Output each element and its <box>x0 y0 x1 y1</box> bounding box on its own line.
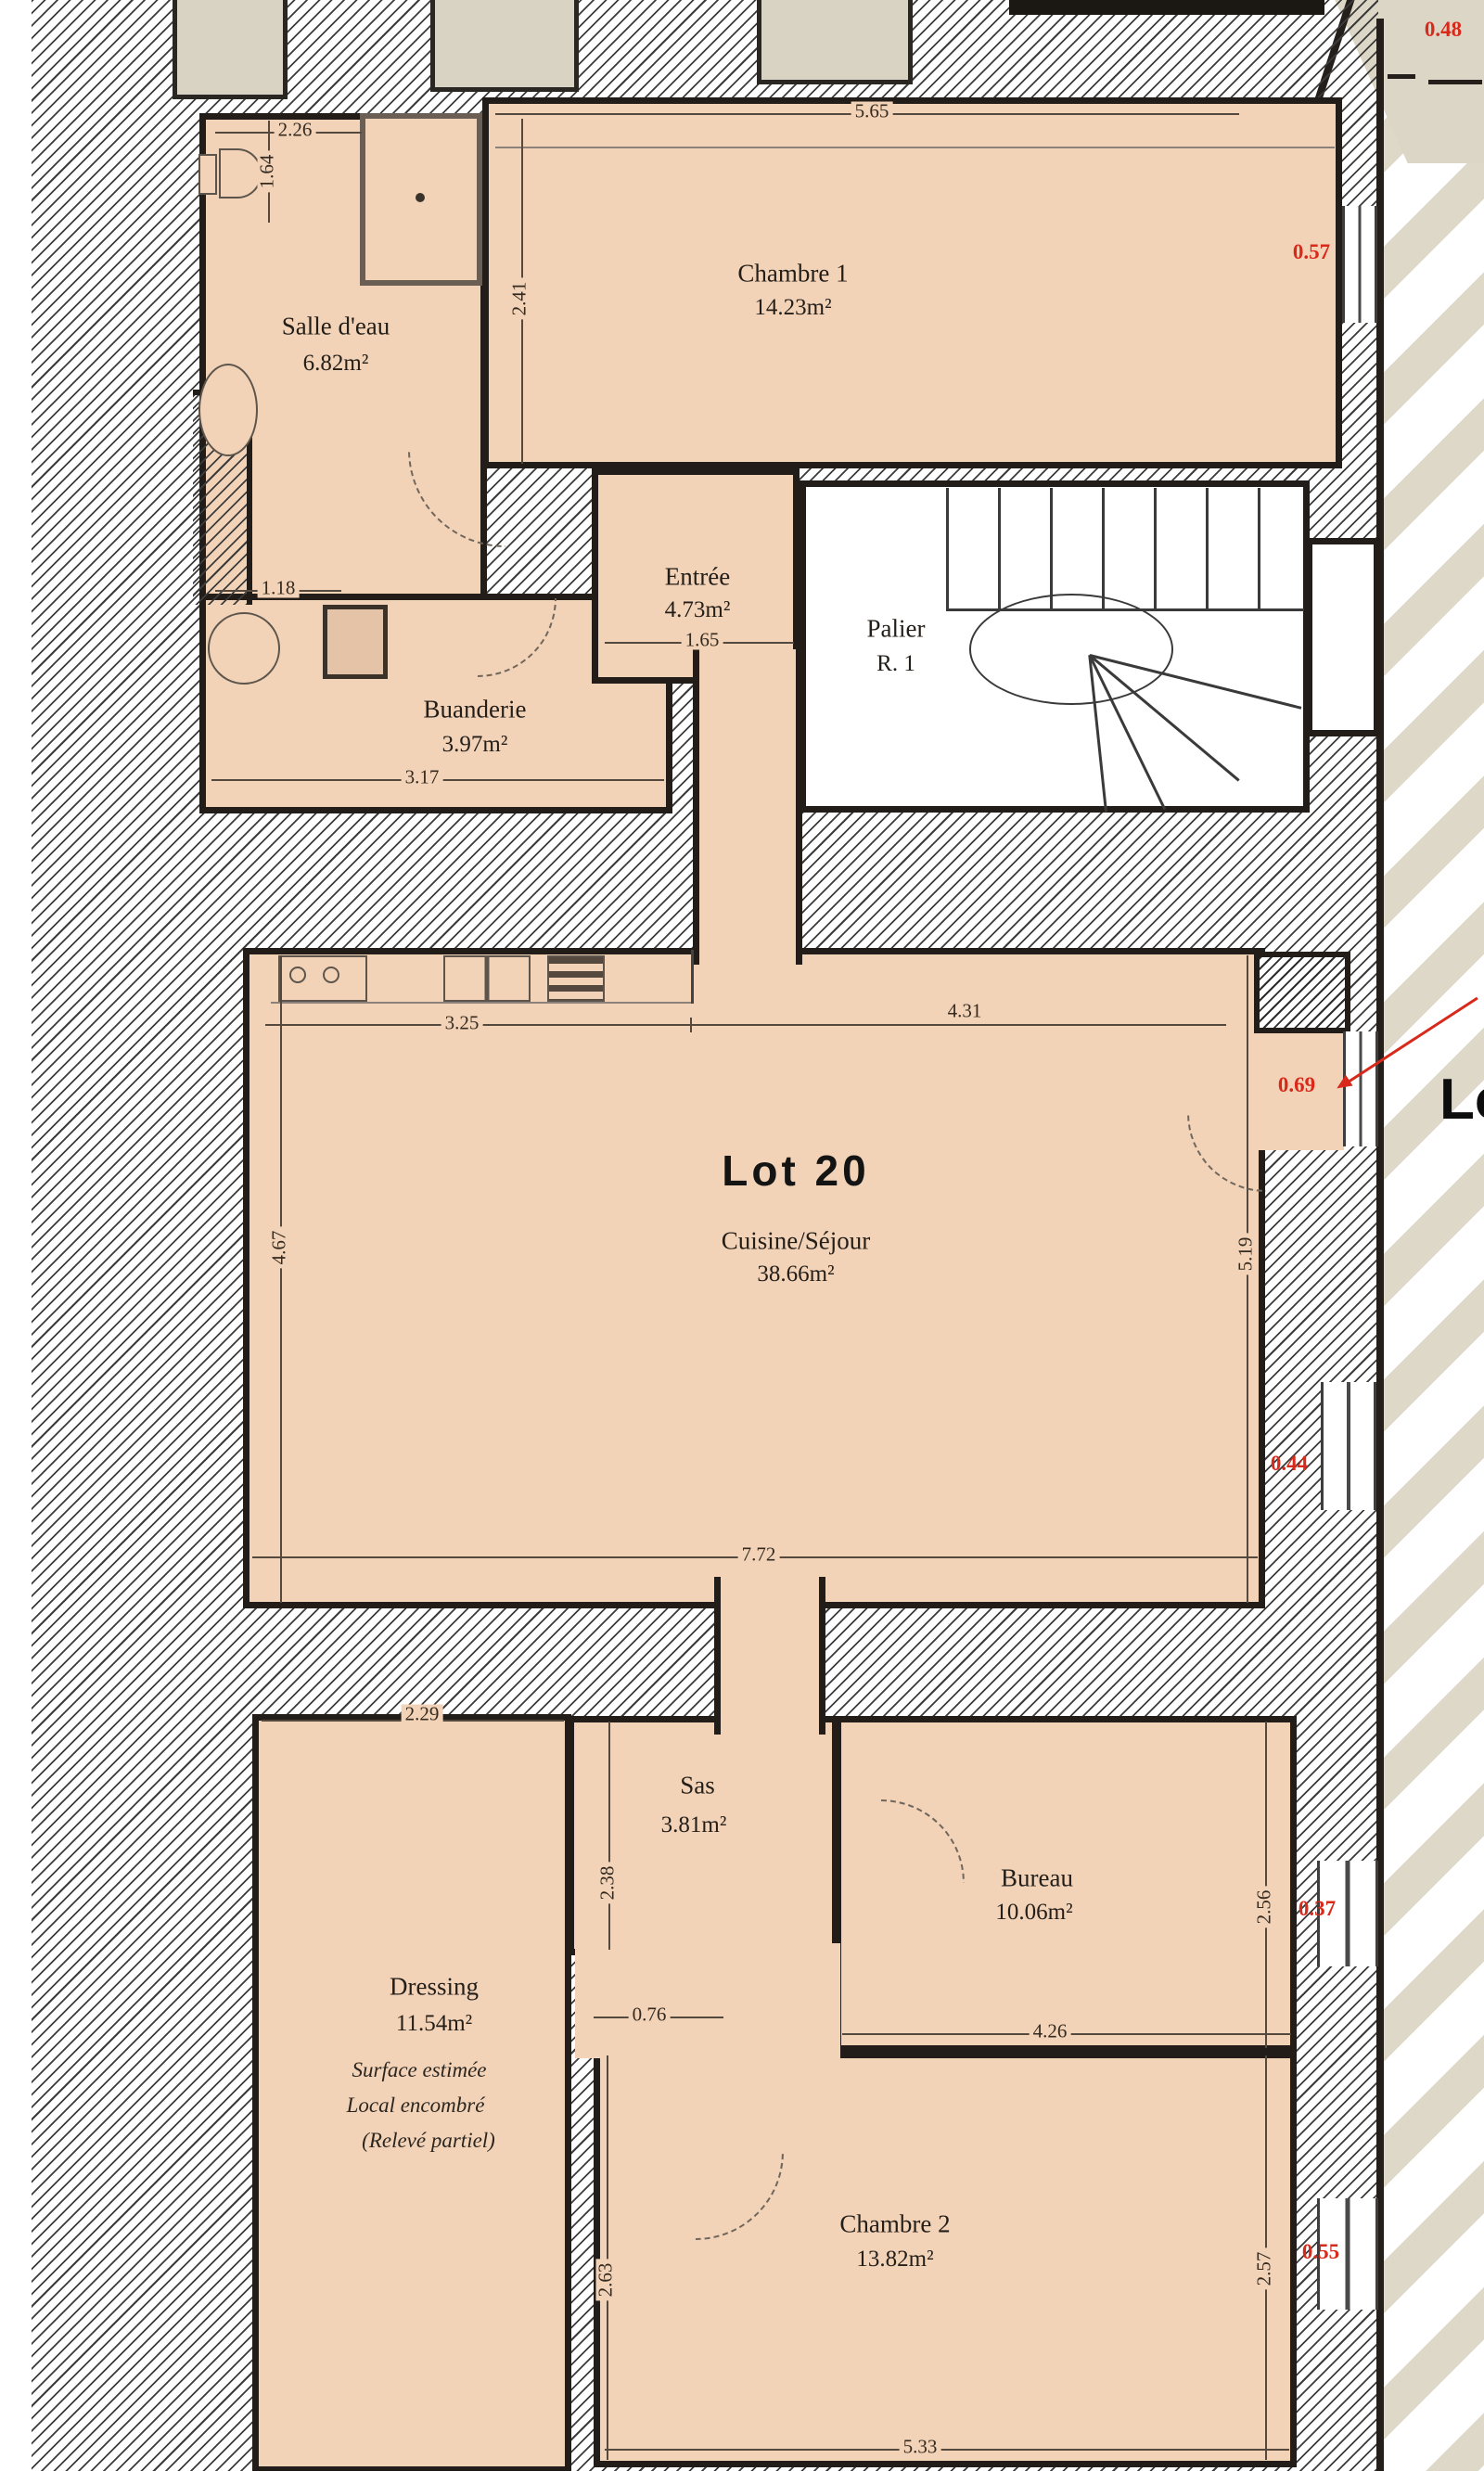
room-level: R. 1 <box>876 651 915 677</box>
room-label: Chambre 2 <box>839 2210 950 2239</box>
dim-label: 5.19 <box>1236 1234 1256 1275</box>
dim-label: 1.65 <box>682 631 723 650</box>
red-dim-label: 0.44 <box>1271 1452 1308 1476</box>
stair-tread <box>1102 488 1105 608</box>
dim-label: 2.29 <box>402 1705 443 1724</box>
window-opening-057 <box>1342 206 1377 323</box>
kitchen-sink-icon <box>443 955 531 1002</box>
wall-dash-1 <box>1388 74 1415 79</box>
room-label: Salle d'eau <box>282 313 390 341</box>
dim-label: 4.26 <box>1030 2022 1071 2042</box>
room-area: 14.23m² <box>754 295 831 321</box>
dim-label: 2.63 <box>596 2260 616 2301</box>
dim-label: 1.18 <box>258 579 300 598</box>
utility-box-icon <box>323 605 388 679</box>
room-note: Surface estimée <box>352 2058 487 2082</box>
room-area: 13.82m² <box>856 2247 933 2273</box>
exterior-striped-zone <box>1378 0 1484 2484</box>
dim-label: 5.65 <box>851 102 893 122</box>
room-label: Dressing <box>390 1973 479 2002</box>
dim-label: 7.72 <box>738 1545 780 1565</box>
stove-burner-icon <box>289 967 306 983</box>
inner-wall-line <box>495 147 1335 148</box>
hall-to-chambre2 <box>575 1943 840 2058</box>
stair-tread <box>1154 488 1157 608</box>
window-opening-044 <box>1321 1382 1376 1510</box>
dim-label: 2.38 <box>598 1863 618 1904</box>
dim-label: 4.31 <box>944 1002 986 1021</box>
neighbor-block-1 <box>173 0 288 99</box>
window-pier <box>1254 952 1350 1033</box>
room-label: Palier <box>867 615 926 644</box>
stove-burner-icon <box>323 967 339 983</box>
red-dim-label: 0.55 <box>1302 2240 1339 2264</box>
red-dim-label: 0.48 <box>1425 18 1462 42</box>
room-note: (Relevé partiel) <box>362 2129 495 2153</box>
room-label: Entrée <box>665 563 730 592</box>
room-area: 3.97m² <box>442 732 508 758</box>
room-area: 4.73m² <box>665 597 731 623</box>
stair-tread <box>1050 488 1053 608</box>
dim-label: 2.56 <box>1255 1887 1274 1928</box>
dim-label: 5.33 <box>900 2438 941 2457</box>
toilet-icon <box>198 154 217 195</box>
flue-dot <box>416 193 425 202</box>
lot-title: Lot 20 <box>722 1146 869 1196</box>
room-area: 10.06m² <box>995 1900 1072 1926</box>
dim-line-v <box>608 1722 610 1950</box>
neighbor-block-3 <box>757 0 913 84</box>
room-label: Sas <box>680 1772 715 1800</box>
dim-label: 3.17 <box>402 768 443 787</box>
room-area: 6.82m² <box>303 351 369 377</box>
dim-line <box>265 1024 1226 1026</box>
room-chambre-1 <box>482 97 1342 468</box>
room-label: Chambre 1 <box>737 260 848 288</box>
wall-dash-2 <box>1428 80 1482 84</box>
dim-label: 2.41 <box>510 278 530 320</box>
stair-tread <box>1258 488 1260 608</box>
red-dim-label: 0.57 <box>1293 240 1330 264</box>
dim-label: 1.64 <box>258 151 277 193</box>
dim-tick <box>690 1018 692 1032</box>
red-dim-label: 0.37 <box>1298 1897 1336 1921</box>
neighbor-block-2 <box>430 0 579 92</box>
kitchen-appliance-icon <box>547 955 605 1002</box>
stair-landing-bump <box>1306 538 1380 736</box>
room-label: Bureau <box>1001 1864 1073 1893</box>
dim-label: 0.76 <box>629 2005 671 2025</box>
room-cuisine-sejour <box>243 948 1265 1608</box>
stair-tread <box>1206 488 1209 608</box>
room-area: 11.54m² <box>396 2011 472 2037</box>
room-note: Local encombré <box>347 2093 485 2118</box>
roof-bar <box>1009 0 1324 15</box>
dim-label: 2.57 <box>1255 2248 1274 2290</box>
dim-line <box>605 2449 1289 2451</box>
washbasin-icon <box>198 364 258 456</box>
stair-tread <box>998 488 1001 608</box>
dim-label: 4.67 <box>270 1227 289 1269</box>
window-opening-069 <box>1343 1031 1378 1146</box>
dim-line-v <box>1265 1722 1267 2048</box>
room-area: 3.81m² <box>661 1812 727 1838</box>
corridor-cuisine-sas <box>714 1577 825 1735</box>
dim-label: 2.26 <box>275 121 316 140</box>
floor-plan-canvas: Salle d'eau 6.82m² Chambre 1 14.23m² Ent… <box>0 0 1484 2484</box>
dim-label: 3.25 <box>441 1014 483 1033</box>
bottom-margin <box>0 2471 1484 2484</box>
building-outer-wall <box>1376 19 1384 2484</box>
washer-icon <box>208 612 280 685</box>
stair-winder-rail <box>969 594 1173 705</box>
room-chambre-2 <box>594 2052 1297 2467</box>
corridor-entree-cuisine <box>693 649 802 965</box>
counter-edge-line <box>271 1002 693 1004</box>
dim-line-v <box>607 2055 608 2460</box>
room-label: Buanderie <box>424 696 527 724</box>
neighbor-lot-label: Lo <box>1439 1067 1484 1133</box>
stair-tread <box>946 488 949 608</box>
room-area: 38.66m² <box>757 1261 834 1287</box>
dim-line-v <box>1247 955 1248 1603</box>
red-dim-label: 0.69 <box>1278 1073 1315 1097</box>
kitchen-partition <box>691 950 694 1004</box>
room-label: Cuisine/Séjour <box>722 1227 871 1256</box>
dim-line-v <box>280 955 282 1603</box>
